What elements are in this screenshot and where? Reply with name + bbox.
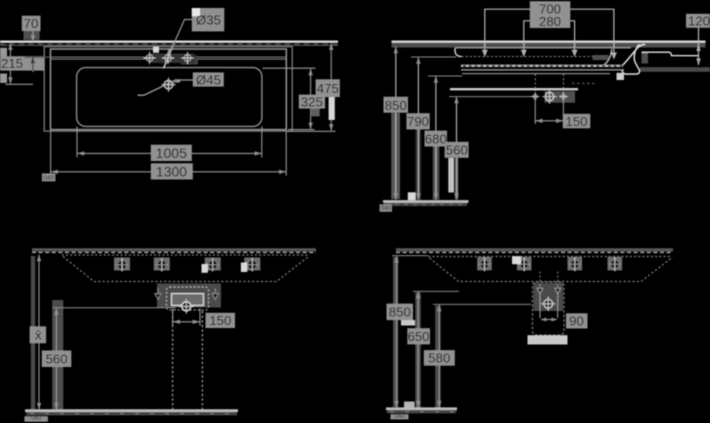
svg-text:850: 850 (389, 305, 411, 320)
svg-text:850: 850 (385, 98, 407, 113)
svg-text:040: 040 (44, 176, 55, 182)
svg-text:040: 040 (381, 206, 392, 212)
svg-text:040: 040 (394, 414, 405, 420)
svg-text:040: 040 (31, 416, 42, 422)
svg-text:680: 680 (425, 131, 447, 146)
svg-text:215: 215 (1, 56, 23, 71)
svg-text:120: 120 (688, 14, 710, 29)
svg-text:560: 560 (46, 352, 68, 367)
svg-text:150: 150 (565, 114, 587, 129)
svg-text:Ø45: Ø45 (196, 73, 221, 88)
svg-text:x̄: x̄ (35, 327, 42, 342)
svg-text:560: 560 (446, 143, 468, 158)
svg-text:1300: 1300 (156, 163, 187, 179)
svg-text:1005: 1005 (156, 145, 187, 161)
svg-text:475: 475 (317, 81, 339, 96)
svg-text:150: 150 (209, 313, 231, 328)
svg-text:90: 90 (569, 313, 584, 328)
svg-text:280: 280 (539, 14, 561, 29)
svg-text:650: 650 (407, 329, 429, 344)
svg-text:580: 580 (428, 351, 450, 366)
svg-text:790: 790 (407, 114, 429, 129)
svg-text:70: 70 (24, 16, 39, 31)
svg-text:Ø35: Ø35 (196, 13, 221, 28)
